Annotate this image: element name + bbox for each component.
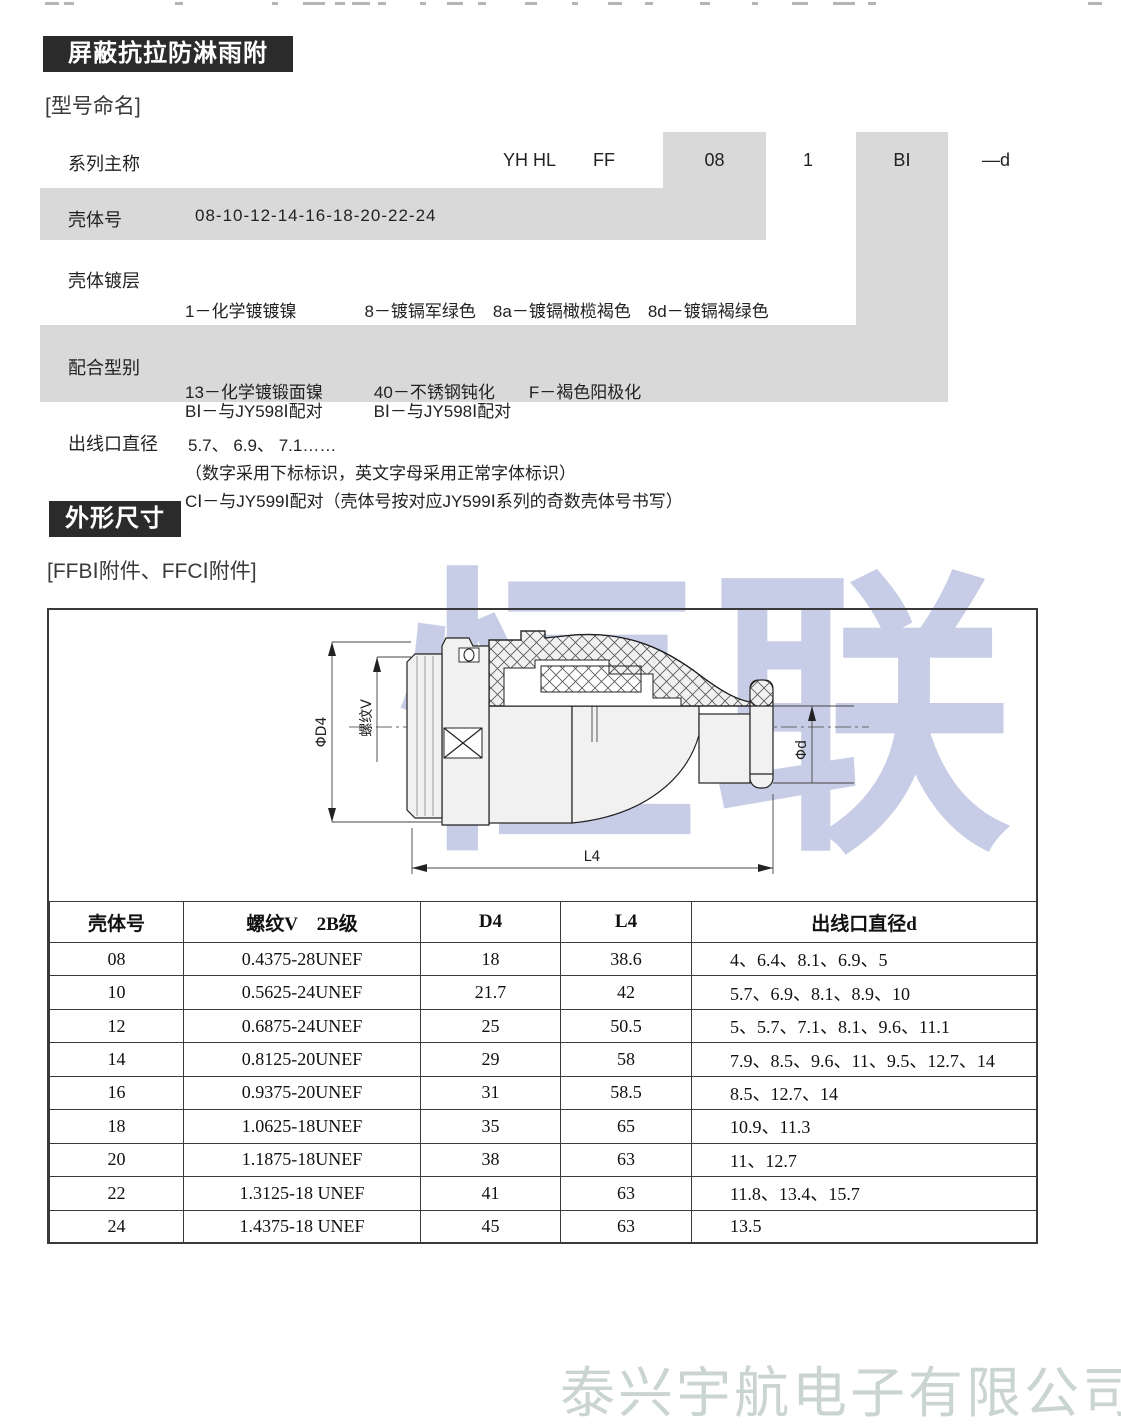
catalog-page: { "header": { "section1_title": "屏蔽抗拉防淋雨… — [0, 0, 1121, 1424]
table-cell: 45 — [421, 1210, 561, 1244]
code-part-outlet: —d — [982, 150, 1010, 171]
knurled-nut — [407, 654, 442, 818]
table-cell: 18 — [50, 1110, 184, 1143]
table-cell: 65 — [561, 1110, 692, 1143]
shell-number-label: 壳体号 — [68, 206, 122, 232]
outline-drawing-box: ΦD4 螺纹V Φd L4 壳体号 螺纹V 2B级 D4 L4 出线 — [47, 608, 1038, 1244]
table-row: 201.1875-18UNEF386311、12.7 — [50, 1143, 1037, 1176]
scan-artifact-mark — [700, 2, 710, 5]
code-part-ff: FF — [593, 150, 615, 171]
table-row: 160.9375-20UNEF3158.58.5、12.7、14 — [50, 1076, 1037, 1109]
scan-artifact-mark — [378, 2, 386, 5]
outlet-diameter-values: 5.7、 6.9、 7.1…… — [188, 431, 336, 456]
col-header-l4: L4 — [561, 902, 692, 943]
connector-outline-drawing: ΦD4 螺纹V Φd L4 — [49, 610, 1036, 902]
scan-artifact-mark — [272, 2, 278, 5]
table-cell: 13.5 — [692, 1210, 1037, 1244]
scan-artifact-mark — [303, 2, 325, 5]
scan-artifact-mark — [868, 2, 876, 5]
dim-label-l4: L4 — [584, 849, 601, 865]
scan-artifact-mark — [792, 2, 808, 5]
scan-artifact-mark — [833, 2, 855, 5]
scan-artifact-mark — [608, 2, 622, 5]
table-cell: 10.9、11.3 — [692, 1110, 1037, 1143]
company-watermark: 泰兴宇航电子有限公司 — [560, 1348, 1121, 1428]
scan-artifact-mark — [64, 2, 74, 5]
table-cell: 24 — [50, 1210, 184, 1244]
table-cell: 0.9375-20UNEF — [184, 1076, 421, 1109]
table-cell: 63 — [561, 1210, 692, 1244]
table-cell: 25 — [421, 1009, 561, 1042]
code-part-mating: BⅠ — [856, 150, 948, 171]
table-cell: 63 — [561, 1143, 692, 1176]
scan-artifact-mark — [478, 2, 486, 5]
table-cell: 5.7、6.9、8.1、8.9、10 — [692, 976, 1037, 1009]
body-dome — [572, 706, 699, 823]
table-cell: 63 — [561, 1177, 692, 1210]
code-part-plating: 1 — [803, 150, 813, 171]
table-cell: 0.4375-28UNEF — [184, 943, 421, 976]
table-cell: 10 — [50, 976, 184, 1009]
table-cell: 11、12.7 — [692, 1143, 1037, 1176]
col-header-thread: 螺纹V 2B级 — [184, 902, 421, 943]
scan-artifact-mark — [645, 2, 653, 5]
scan-artifact-mark — [572, 2, 578, 5]
scan-artifact-mark — [752, 2, 758, 5]
dim-label-thread: 螺纹V — [359, 699, 375, 737]
scan-artifact-mark — [447, 2, 463, 5]
table-cell: 7.9、8.5、9.6、11、9.5、12.7、14 — [692, 1043, 1037, 1076]
dim-label-d4: ΦD4 — [314, 717, 330, 748]
table-cell: 1.0625-18UNEF — [184, 1110, 421, 1143]
table-cell: 21.7 — [421, 976, 561, 1009]
table-cell: 1.3125-18 UNEF — [184, 1177, 421, 1210]
mating-line: CⅠ－与JY599Ⅰ配对（壳体号按对应JY599Ⅰ系列的奇数壳体号书写） — [185, 487, 683, 517]
plating-line: 1－化学镀镀镍 8－镀镉军绿色 8a－镀镉橄榄褐色 8d－镀镉褐绿色 — [185, 298, 769, 325]
shell-plating-label: 壳体镀层 — [68, 267, 140, 293]
table-cell: 5、5.7、7.1、8.1、9.6、11.1 — [692, 1009, 1037, 1042]
outlet-diameter-label: 出线口直径 — [68, 430, 158, 456]
table-cell: 14 — [50, 1043, 184, 1076]
table-row: 080.4375-28UNEF1838.64、6.4、8.1、6.9、5 — [50, 943, 1037, 976]
mating-line: BⅠ－与JY598Ⅰ配对 BⅠ－与JY598Ⅰ配对 — [185, 397, 683, 427]
section-title-shielded-accessories: 屏蔽抗拉防淋雨附件 — [43, 36, 293, 72]
code-part-series: YH HL — [503, 150, 556, 171]
table-cell: 1.4375-18 UNEF — [184, 1210, 421, 1244]
table-cell: 35 — [421, 1110, 561, 1143]
mating-type-label: 配合型别 — [68, 354, 140, 380]
table-cell: 0.5625-24UNEF — [184, 976, 421, 1009]
table-cell: 4、6.4、8.1、6.9、5 — [692, 943, 1037, 976]
table-cell: 42 — [561, 976, 692, 1009]
shell-number-values: 08-10-12-14-16-18-20-22-24 — [195, 206, 436, 226]
scan-artifact-mark — [335, 2, 345, 5]
dim-label-d: Φd — [794, 740, 810, 760]
table-row: 181.0625-18UNEF356510.9、11.3 — [50, 1110, 1037, 1143]
table-cell: 18 — [421, 943, 561, 976]
table-cell: 11.8、13.4、15.7 — [692, 1177, 1037, 1210]
table-row: 221.3125-18 UNEF416311.8、13.4、15.7 — [50, 1177, 1037, 1210]
table-cell: 50.5 — [561, 1009, 692, 1042]
table-cell: 1.1875-18UNEF — [184, 1143, 421, 1176]
table-cell: 38.6 — [561, 943, 692, 976]
scan-artifact-mark — [45, 2, 59, 5]
table-cell: 58 — [561, 1043, 692, 1076]
table-header-row: 壳体号 螺纹V 2B级 D4 L4 出线口直径d — [50, 902, 1037, 943]
table-cell: 12 — [50, 1009, 184, 1042]
cable-exit — [699, 714, 750, 783]
table-row: 120.6875-24UNEF2550.55、5.7、7.1、8.1、9.6、1… — [50, 1009, 1037, 1042]
bayonet-pin — [464, 649, 474, 661]
table-cell: 29 — [421, 1043, 561, 1076]
table-row: 241.4375-18 UNEF456313.5 — [50, 1210, 1037, 1244]
scan-artifact-mark — [525, 2, 537, 5]
col-header-outlet: 出线口直径d — [692, 902, 1037, 943]
scan-artifact-mark — [175, 2, 183, 5]
table-row: 140.8125-20UNEF29587.9、8.5、9.6、11、9.5、12… — [50, 1043, 1037, 1076]
table-cell: 38 — [421, 1143, 561, 1176]
table-cell: 16 — [50, 1076, 184, 1109]
table-cell: 58.5 — [561, 1076, 692, 1109]
table-cell: 08 — [50, 943, 184, 976]
code-part-shell: 08 — [663, 150, 766, 171]
col-header-d4: D4 — [421, 902, 561, 943]
table-cell: 31 — [421, 1076, 561, 1109]
table-cell: 0.8125-20UNEF — [184, 1043, 421, 1076]
dimension-table: 壳体号 螺纹V 2B级 D4 L4 出线口直径d 080.4375-28UNEF… — [49, 901, 1037, 1244]
model-naming-diagram: 系列主称 YH HL FF 08 1 BⅠ —d 壳体号 08-10-12-14… — [40, 132, 1030, 402]
ffb-ffc-accessories-tag: [FFBⅠ附件、FFCⅠ附件] — [47, 555, 257, 585]
model-naming-tag: [型号命名] — [45, 90, 141, 120]
outlet-diameter-row: 出线口直径 5.7、 6.9、 7.1…… — [40, 430, 1030, 460]
table-cell: 0.6875-24UNEF — [184, 1009, 421, 1042]
scan-artifact-mark — [420, 2, 426, 5]
table-row: 100.5625-24UNEF21.7425.7、6.9、8.1、8.9、10 — [50, 976, 1037, 1009]
section-title-outline-dimensions: 外形尺寸 — [49, 501, 181, 537]
table-cell: 20 — [50, 1143, 184, 1176]
scan-artifact-mark — [1088, 2, 1102, 5]
table-cell: 41 — [421, 1177, 561, 1210]
table-cell: 8.5、12.7、14 — [692, 1076, 1037, 1109]
body-front — [489, 706, 572, 823]
table-cell: 22 — [50, 1177, 184, 1210]
scan-artifact-row — [0, 0, 1121, 8]
col-header-shell: 壳体号 — [50, 902, 184, 943]
scan-artifact-mark — [352, 2, 370, 5]
series-name-label: 系列主称 — [68, 150, 140, 176]
